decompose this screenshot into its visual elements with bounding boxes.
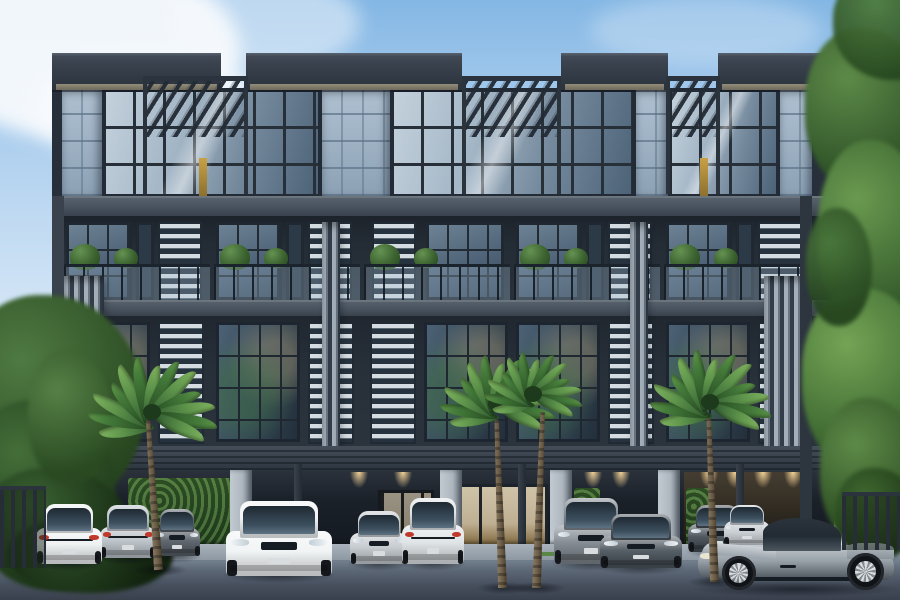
palm-crown-core [143, 404, 161, 420]
palm-crown-core [524, 386, 542, 402]
architectural-rendering-scene [0, 0, 900, 600]
palm-trees [0, 0, 900, 600]
palm-tree [483, 354, 583, 454]
palm-crown-core [701, 394, 719, 410]
